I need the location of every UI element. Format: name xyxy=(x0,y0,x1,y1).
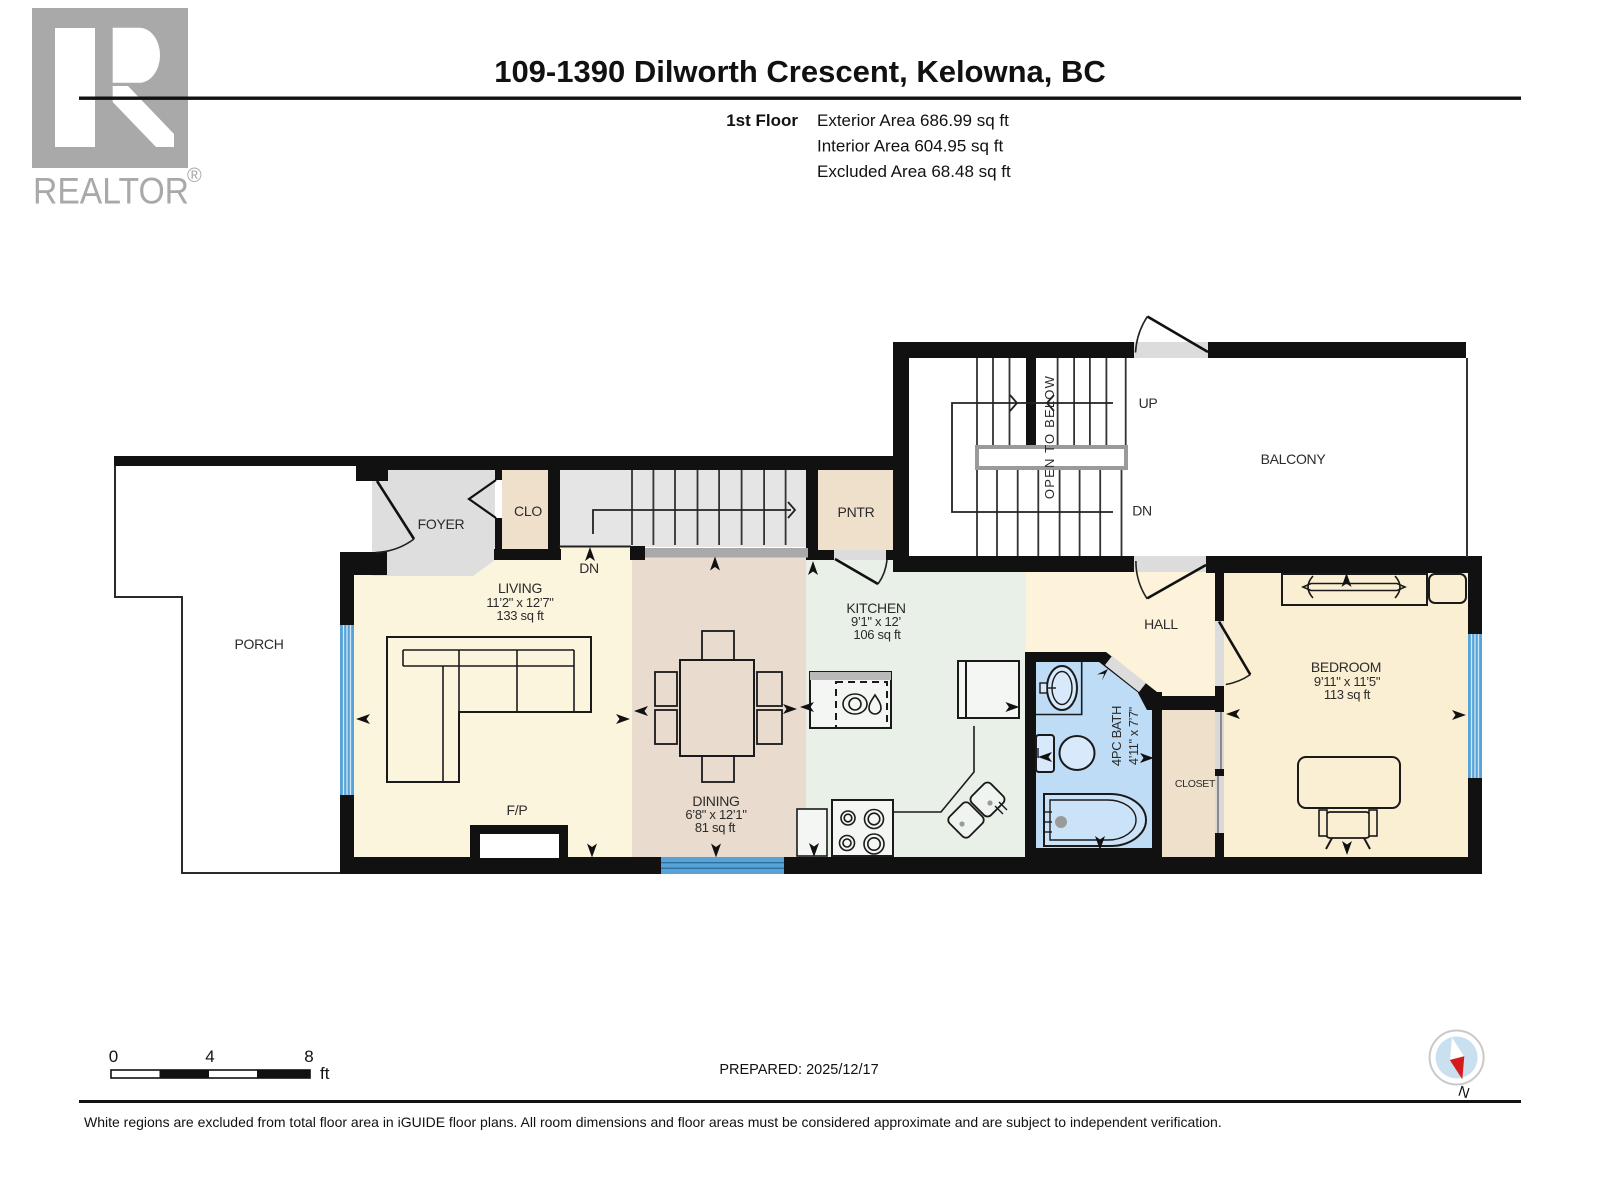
svg-text:PNTR: PNTR xyxy=(838,504,875,520)
svg-text:113 sq ft: 113 sq ft xyxy=(1324,687,1371,702)
svg-text:109-1390 Dilworth Crescent, Ke: 109-1390 Dilworth Crescent, Kelowna, BC xyxy=(494,54,1106,89)
svg-text:BEDROOM: BEDROOM xyxy=(1311,659,1381,675)
svg-text:DN: DN xyxy=(579,560,599,576)
svg-text:UP: UP xyxy=(1139,395,1158,411)
svg-text:FOYER: FOYER xyxy=(418,516,465,532)
svg-text:OPEN TO BELOW: OPEN TO BELOW xyxy=(1042,375,1057,499)
svg-text:CLO: CLO xyxy=(514,503,542,519)
svg-text:White regions are excluded fro: White regions are excluded from total fl… xyxy=(84,1114,1222,1130)
svg-text:4’11" x 7’7": 4’11" x 7’7" xyxy=(1127,707,1141,765)
svg-text:1st Floor: 1st Floor xyxy=(726,111,798,130)
svg-text:Excluded Area 68.48 sq ft: Excluded Area 68.48 sq ft xyxy=(817,162,1011,181)
svg-text:CLOSET: CLOSET xyxy=(1175,778,1216,790)
svg-text:Interior Area 604.95 sq ft: Interior Area 604.95 sq ft xyxy=(817,137,1003,156)
svg-text:0: 0 xyxy=(109,1047,118,1066)
svg-text:HALL: HALL xyxy=(1144,616,1178,632)
svg-text:REALTOR: REALTOR xyxy=(33,171,189,212)
svg-text:N: N xyxy=(1456,1083,1472,1103)
svg-text:®: ® xyxy=(187,165,202,187)
svg-text:106 sq ft: 106 sq ft xyxy=(853,627,901,642)
svg-text:ft: ft xyxy=(320,1064,330,1083)
svg-text:4: 4 xyxy=(205,1047,214,1066)
svg-text:F/P: F/P xyxy=(507,802,528,818)
svg-text:BALCONY: BALCONY xyxy=(1261,451,1327,467)
svg-text:133 sq ft: 133 sq ft xyxy=(496,608,544,623)
svg-text:81 sq ft: 81 sq ft xyxy=(695,820,736,835)
svg-text:Exterior Area 686.99 sq ft: Exterior Area 686.99 sq ft xyxy=(817,111,1009,130)
svg-text:4PC BATH: 4PC BATH xyxy=(1109,706,1124,766)
svg-text:LIVING: LIVING xyxy=(498,580,542,596)
svg-text:8: 8 xyxy=(304,1047,313,1066)
svg-text:DN: DN xyxy=(1132,503,1152,519)
svg-text:PORCH: PORCH xyxy=(234,636,283,652)
svg-text:PREPARED: 2025/12/17: PREPARED: 2025/12/17 xyxy=(719,1062,878,1078)
